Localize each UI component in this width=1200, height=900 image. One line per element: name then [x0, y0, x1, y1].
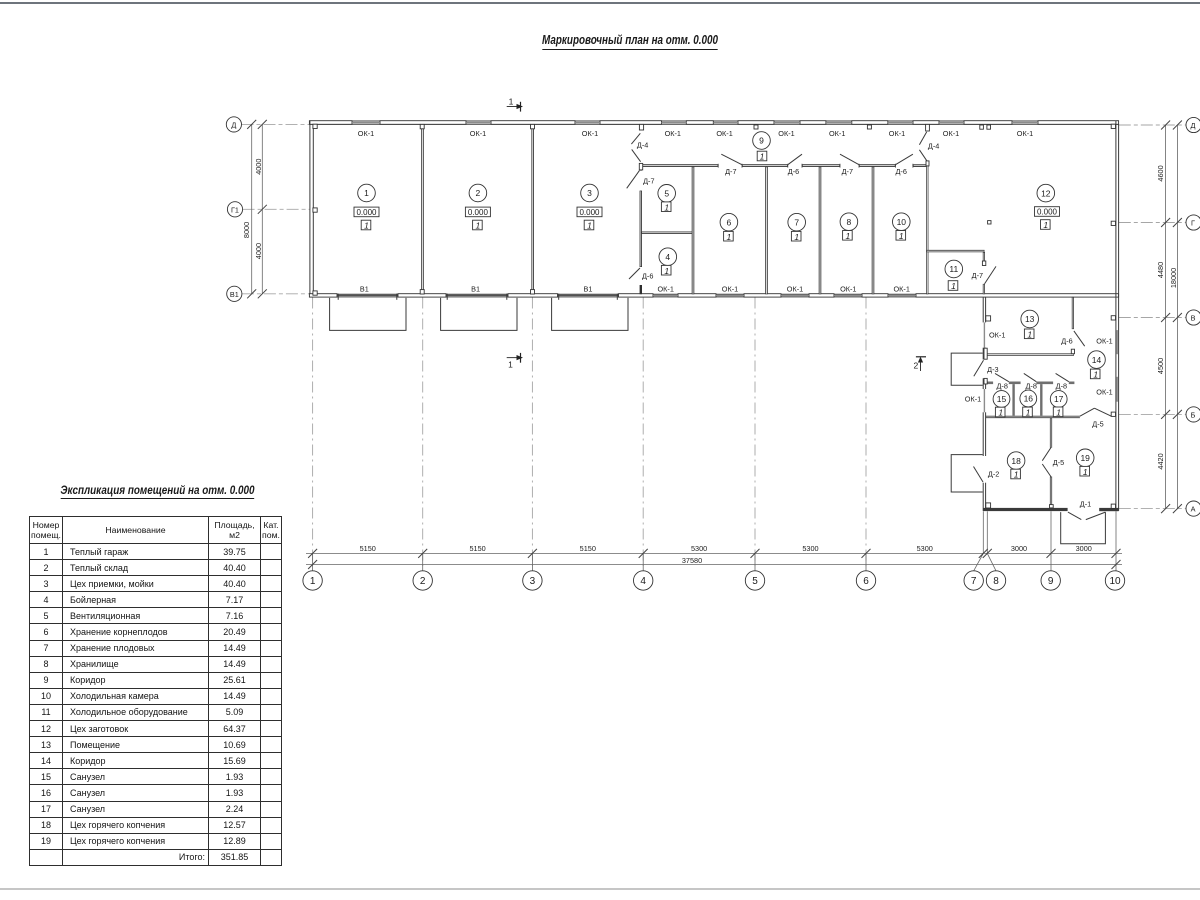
- svg-text:Д-7: Д-7: [972, 271, 983, 280]
- svg-text:Д-6: Д-6: [1061, 337, 1072, 346]
- svg-text:ОК-1: ОК-1: [358, 129, 374, 138]
- svg-text:1: 1: [664, 266, 669, 276]
- svg-text:ОК-1: ОК-1: [787, 285, 803, 294]
- svg-text:1: 1: [1027, 330, 1032, 340]
- svg-text:5150: 5150: [469, 544, 485, 553]
- svg-text:13: 13: [1025, 314, 1035, 324]
- svg-text:8: 8: [993, 576, 999, 587]
- svg-text:8000: 8000: [242, 222, 251, 238]
- svg-text:1: 1: [998, 408, 1003, 418]
- svg-text:14: 14: [1092, 355, 1102, 365]
- svg-text:4000: 4000: [254, 243, 263, 259]
- svg-text:5: 5: [664, 189, 669, 199]
- svg-text:1: 1: [1026, 408, 1031, 418]
- svg-text:ОК-1: ОК-1: [1096, 337, 1112, 346]
- svg-text:7: 7: [794, 217, 799, 227]
- svg-text:Д-8: Д-8: [1056, 382, 1067, 391]
- svg-text:2: 2: [476, 188, 481, 198]
- svg-text:18000: 18000: [1169, 268, 1178, 288]
- svg-text:1: 1: [587, 221, 592, 231]
- svg-text:5300: 5300: [917, 544, 933, 553]
- svg-text:Г1: Г1: [231, 205, 239, 214]
- svg-text:В: В: [1191, 314, 1196, 323]
- svg-text:1: 1: [760, 152, 765, 162]
- svg-text:4: 4: [640, 576, 646, 587]
- svg-text:4480: 4480: [1156, 262, 1165, 278]
- svg-text:17: 17: [1054, 394, 1064, 404]
- svg-text:Д-6: Д-6: [788, 167, 799, 176]
- svg-text:1: 1: [1043, 220, 1048, 230]
- svg-text:1: 1: [846, 231, 851, 241]
- svg-text:Г: Г: [1191, 219, 1195, 228]
- svg-text:4500: 4500: [1156, 358, 1165, 374]
- svg-text:ОК-1: ОК-1: [943, 129, 959, 138]
- svg-text:ОК-1: ОК-1: [716, 129, 732, 138]
- svg-text:Д: Д: [1191, 121, 1196, 130]
- svg-text:Д-7: Д-7: [725, 167, 736, 176]
- svg-text:ОК-1: ОК-1: [989, 330, 1005, 339]
- svg-text:В1: В1: [360, 285, 369, 294]
- svg-text:Д-5: Д-5: [1092, 419, 1103, 428]
- svg-text:15: 15: [997, 394, 1007, 404]
- svg-text:10: 10: [897, 217, 907, 227]
- svg-text:4600: 4600: [1156, 165, 1165, 181]
- svg-text:1: 1: [364, 221, 369, 231]
- svg-text:ОК-1: ОК-1: [722, 285, 738, 294]
- svg-text:10: 10: [1109, 576, 1121, 587]
- svg-text:4: 4: [665, 252, 670, 262]
- svg-text:6: 6: [727, 217, 732, 227]
- svg-text:2: 2: [914, 360, 919, 370]
- svg-text:3: 3: [587, 188, 592, 198]
- svg-text:ОК-1: ОК-1: [889, 129, 905, 138]
- svg-text:А: А: [1191, 505, 1196, 514]
- svg-text:Д-1: Д-1: [1080, 499, 1091, 508]
- svg-text:6: 6: [863, 576, 869, 587]
- svg-text:Д-6: Д-6: [642, 272, 653, 281]
- svg-text:9: 9: [759, 136, 764, 146]
- svg-text:1: 1: [1014, 470, 1019, 480]
- svg-text:В1: В1: [471, 285, 480, 294]
- svg-text:1: 1: [310, 576, 316, 587]
- svg-text:12: 12: [1041, 188, 1051, 198]
- svg-text:5300: 5300: [691, 544, 707, 553]
- svg-text:1: 1: [899, 231, 904, 241]
- svg-text:3000: 3000: [1076, 544, 1092, 553]
- svg-text:16: 16: [1024, 394, 1034, 404]
- svg-text:ОК-1: ОК-1: [582, 129, 598, 138]
- svg-text:ОК-1: ОК-1: [965, 394, 981, 403]
- svg-text:5: 5: [752, 576, 758, 587]
- svg-text:ОК-1: ОК-1: [893, 285, 909, 294]
- svg-text:Б: Б: [1191, 410, 1196, 419]
- svg-text:В1: В1: [584, 285, 593, 294]
- svg-text:1: 1: [364, 188, 369, 198]
- svg-text:0.000: 0.000: [579, 208, 600, 217]
- svg-text:Д-5: Д-5: [1053, 458, 1064, 467]
- svg-text:1: 1: [509, 96, 514, 106]
- svg-text:ОК-1: ОК-1: [470, 129, 486, 138]
- svg-text:Д-3: Д-3: [987, 365, 998, 374]
- svg-text:ОК-1: ОК-1: [1017, 129, 1033, 138]
- svg-text:4420: 4420: [1156, 453, 1165, 469]
- svg-text:Д-6: Д-6: [895, 167, 906, 176]
- svg-text:9: 9: [1048, 576, 1054, 587]
- svg-text:Д-4: Д-4: [928, 142, 939, 151]
- svg-text:Д-4: Д-4: [637, 141, 648, 150]
- svg-text:8: 8: [847, 217, 852, 227]
- svg-text:1: 1: [951, 281, 956, 291]
- svg-text:4000: 4000: [254, 159, 263, 175]
- svg-text:1: 1: [1056, 408, 1061, 418]
- svg-text:0.000: 0.000: [1037, 207, 1058, 216]
- svg-text:В1: В1: [230, 290, 239, 299]
- svg-text:1: 1: [727, 232, 732, 242]
- svg-text:Д-7: Д-7: [643, 177, 654, 186]
- svg-text:1: 1: [1093, 370, 1098, 380]
- svg-text:5300: 5300: [802, 544, 818, 553]
- svg-text:7: 7: [971, 576, 977, 587]
- svg-text:5150: 5150: [360, 544, 376, 553]
- svg-text:Д-8: Д-8: [996, 382, 1007, 391]
- svg-text:19: 19: [1080, 453, 1090, 463]
- svg-text:ОК-1: ОК-1: [657, 285, 673, 294]
- svg-text:ОК-1: ОК-1: [1096, 387, 1112, 396]
- svg-text:ОК-1: ОК-1: [829, 129, 845, 138]
- svg-text:37580: 37580: [682, 556, 702, 565]
- svg-text:ОК-1: ОК-1: [778, 129, 794, 138]
- svg-text:ОК-1: ОК-1: [665, 129, 681, 138]
- svg-text:Д-7: Д-7: [842, 167, 853, 176]
- svg-text:2: 2: [420, 576, 426, 587]
- svg-text:Д-8: Д-8: [1025, 382, 1036, 391]
- svg-text:1: 1: [508, 360, 513, 370]
- svg-text:1: 1: [794, 232, 799, 242]
- svg-text:1: 1: [476, 221, 481, 231]
- svg-text:Д: Д: [231, 120, 236, 129]
- svg-text:5150: 5150: [580, 544, 596, 553]
- svg-text:ОК-1: ОК-1: [840, 285, 856, 294]
- svg-text:Д-2: Д-2: [988, 469, 999, 478]
- svg-text:18: 18: [1011, 456, 1021, 466]
- svg-text:11: 11: [949, 264, 958, 274]
- svg-text:1: 1: [1083, 467, 1088, 477]
- svg-text:0.000: 0.000: [356, 208, 377, 217]
- svg-text:1: 1: [664, 202, 669, 212]
- svg-text:3: 3: [530, 576, 536, 587]
- svg-text:0.000: 0.000: [468, 208, 489, 217]
- svg-text:3000: 3000: [1011, 544, 1027, 553]
